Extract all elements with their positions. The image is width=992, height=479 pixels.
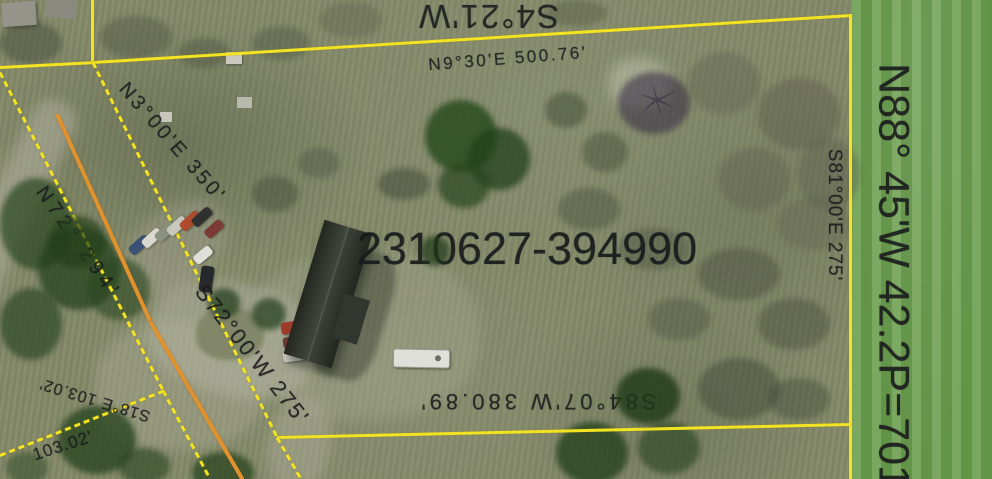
- tree-shadow: [648, 298, 710, 340]
- tree-shadow: [768, 378, 830, 420]
- bare-tree: [688, 52, 760, 114]
- annotation-east-outer-bearing: N88° 45'W 42.2P=701.: [869, 63, 918, 479]
- annotation-east-inner-bearing: S81°00'E 275': [823, 149, 845, 281]
- tree-blob: [545, 92, 587, 128]
- tree-blob: [582, 132, 628, 172]
- boundary-line-north-stub: [91, 0, 94, 64]
- annotation-north-boundary-bearing: N9°30'E 500.76': [428, 43, 589, 75]
- neighbor-roof: [46, 0, 77, 19]
- tree-blob: [0, 22, 62, 64]
- neighbor-roof: [1, 1, 37, 27]
- aerial-plat-map: S4°21'W N9°30'E 500.76' 2310627-394990 N…: [0, 0, 992, 479]
- tree-blob-dark-green: [0, 288, 62, 360]
- tree-shadow: [378, 168, 430, 200]
- tree-blob: [252, 176, 298, 212]
- tree-blob: [100, 16, 172, 58]
- tree-blob: [320, 2, 382, 38]
- tree-blob: [252, 26, 310, 60]
- box-truck: [393, 349, 450, 369]
- truck-cab-window: [435, 355, 441, 361]
- tree-blob-dark-green: [438, 162, 490, 208]
- tree-blob-dark-green: [118, 448, 170, 479]
- tree-blob-over-text: [48, 216, 106, 268]
- tree-shadow: [698, 358, 780, 420]
- annotation-top-outer-bearing: S4°21'W: [417, 0, 559, 35]
- bare-tree: [718, 148, 790, 210]
- boundary-line-east: [849, 14, 852, 479]
- parcel-number: 2310627-394990: [357, 223, 697, 275]
- tree-blob: [298, 148, 340, 178]
- tree-shadow: [698, 248, 780, 300]
- tree-shadow: [758, 298, 830, 350]
- tree-blob-over-text: [420, 236, 450, 266]
- shed-roof: [237, 97, 252, 108]
- tree-blob-over-text: [616, 368, 680, 424]
- boundary-line-west-stub: [0, 61, 94, 69]
